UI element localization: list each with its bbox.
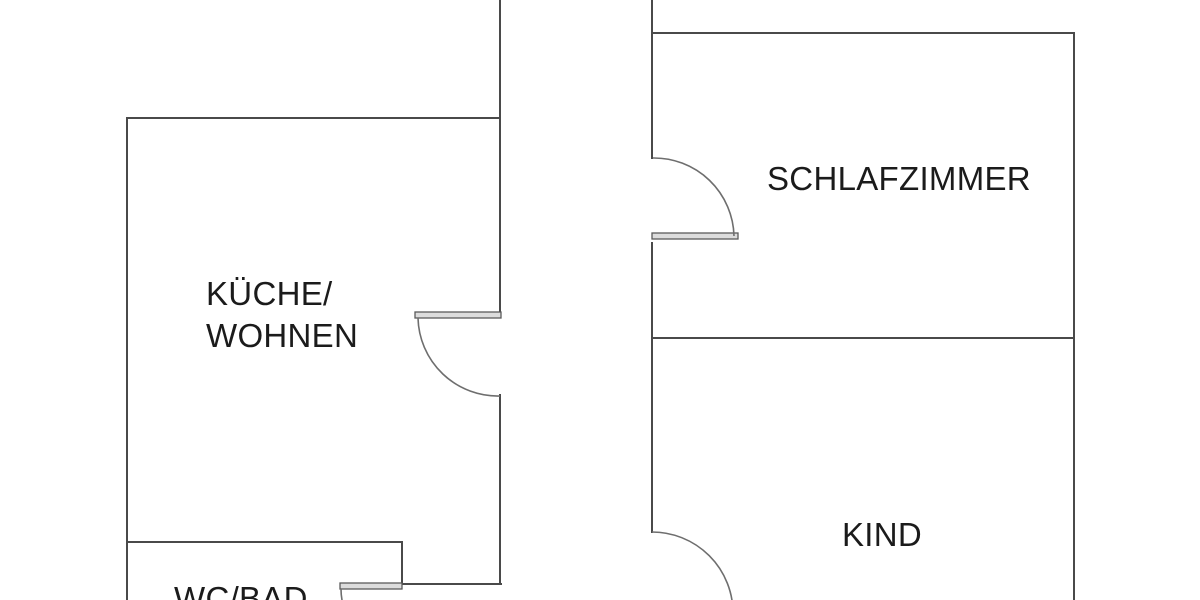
floor-plan: KÜCHE/ WOHNEN SCHLAFZIMMER KIND WC/BAD xyxy=(0,0,1200,600)
room-label-kueche-wohnen: KÜCHE/ WOHNEN xyxy=(206,273,358,357)
door-leaf-kueche xyxy=(415,312,501,318)
door-swing-arc-kind xyxy=(652,532,733,600)
door-leaf-schlafzimmer xyxy=(652,233,738,239)
floor-plan-drawing xyxy=(0,0,1200,600)
door-leaf-wc-bad xyxy=(340,583,402,589)
door-swing-arc-schlafzimmer xyxy=(653,158,734,236)
room-label-wc-bad: WC/BAD xyxy=(174,578,308,600)
room-label-line: WOHNEN xyxy=(206,315,358,357)
door-swing-arc-kueche xyxy=(418,318,500,396)
room-label-line: KÜCHE/ xyxy=(206,273,358,315)
room-label-kind: KIND xyxy=(842,514,922,556)
room-label-schlafzimmer: SCHLAFZIMMER xyxy=(767,158,1031,200)
door-swing-arc-wc-bad xyxy=(341,589,402,600)
